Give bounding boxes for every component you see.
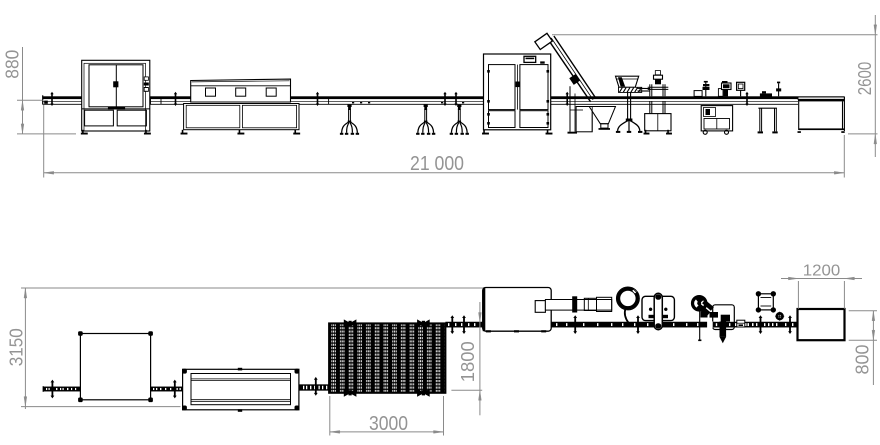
- svg-text:3150: 3150: [7, 328, 27, 366]
- svg-text:3000: 3000: [369, 413, 408, 435]
- svg-text:880: 880: [2, 50, 22, 79]
- svg-text:800: 800: [853, 345, 873, 375]
- svg-text:1200: 1200: [803, 262, 841, 279]
- svg-text:2600: 2600: [855, 62, 875, 96]
- svg-text:21 000: 21 000: [410, 153, 464, 175]
- svg-text:1800: 1800: [458, 341, 478, 382]
